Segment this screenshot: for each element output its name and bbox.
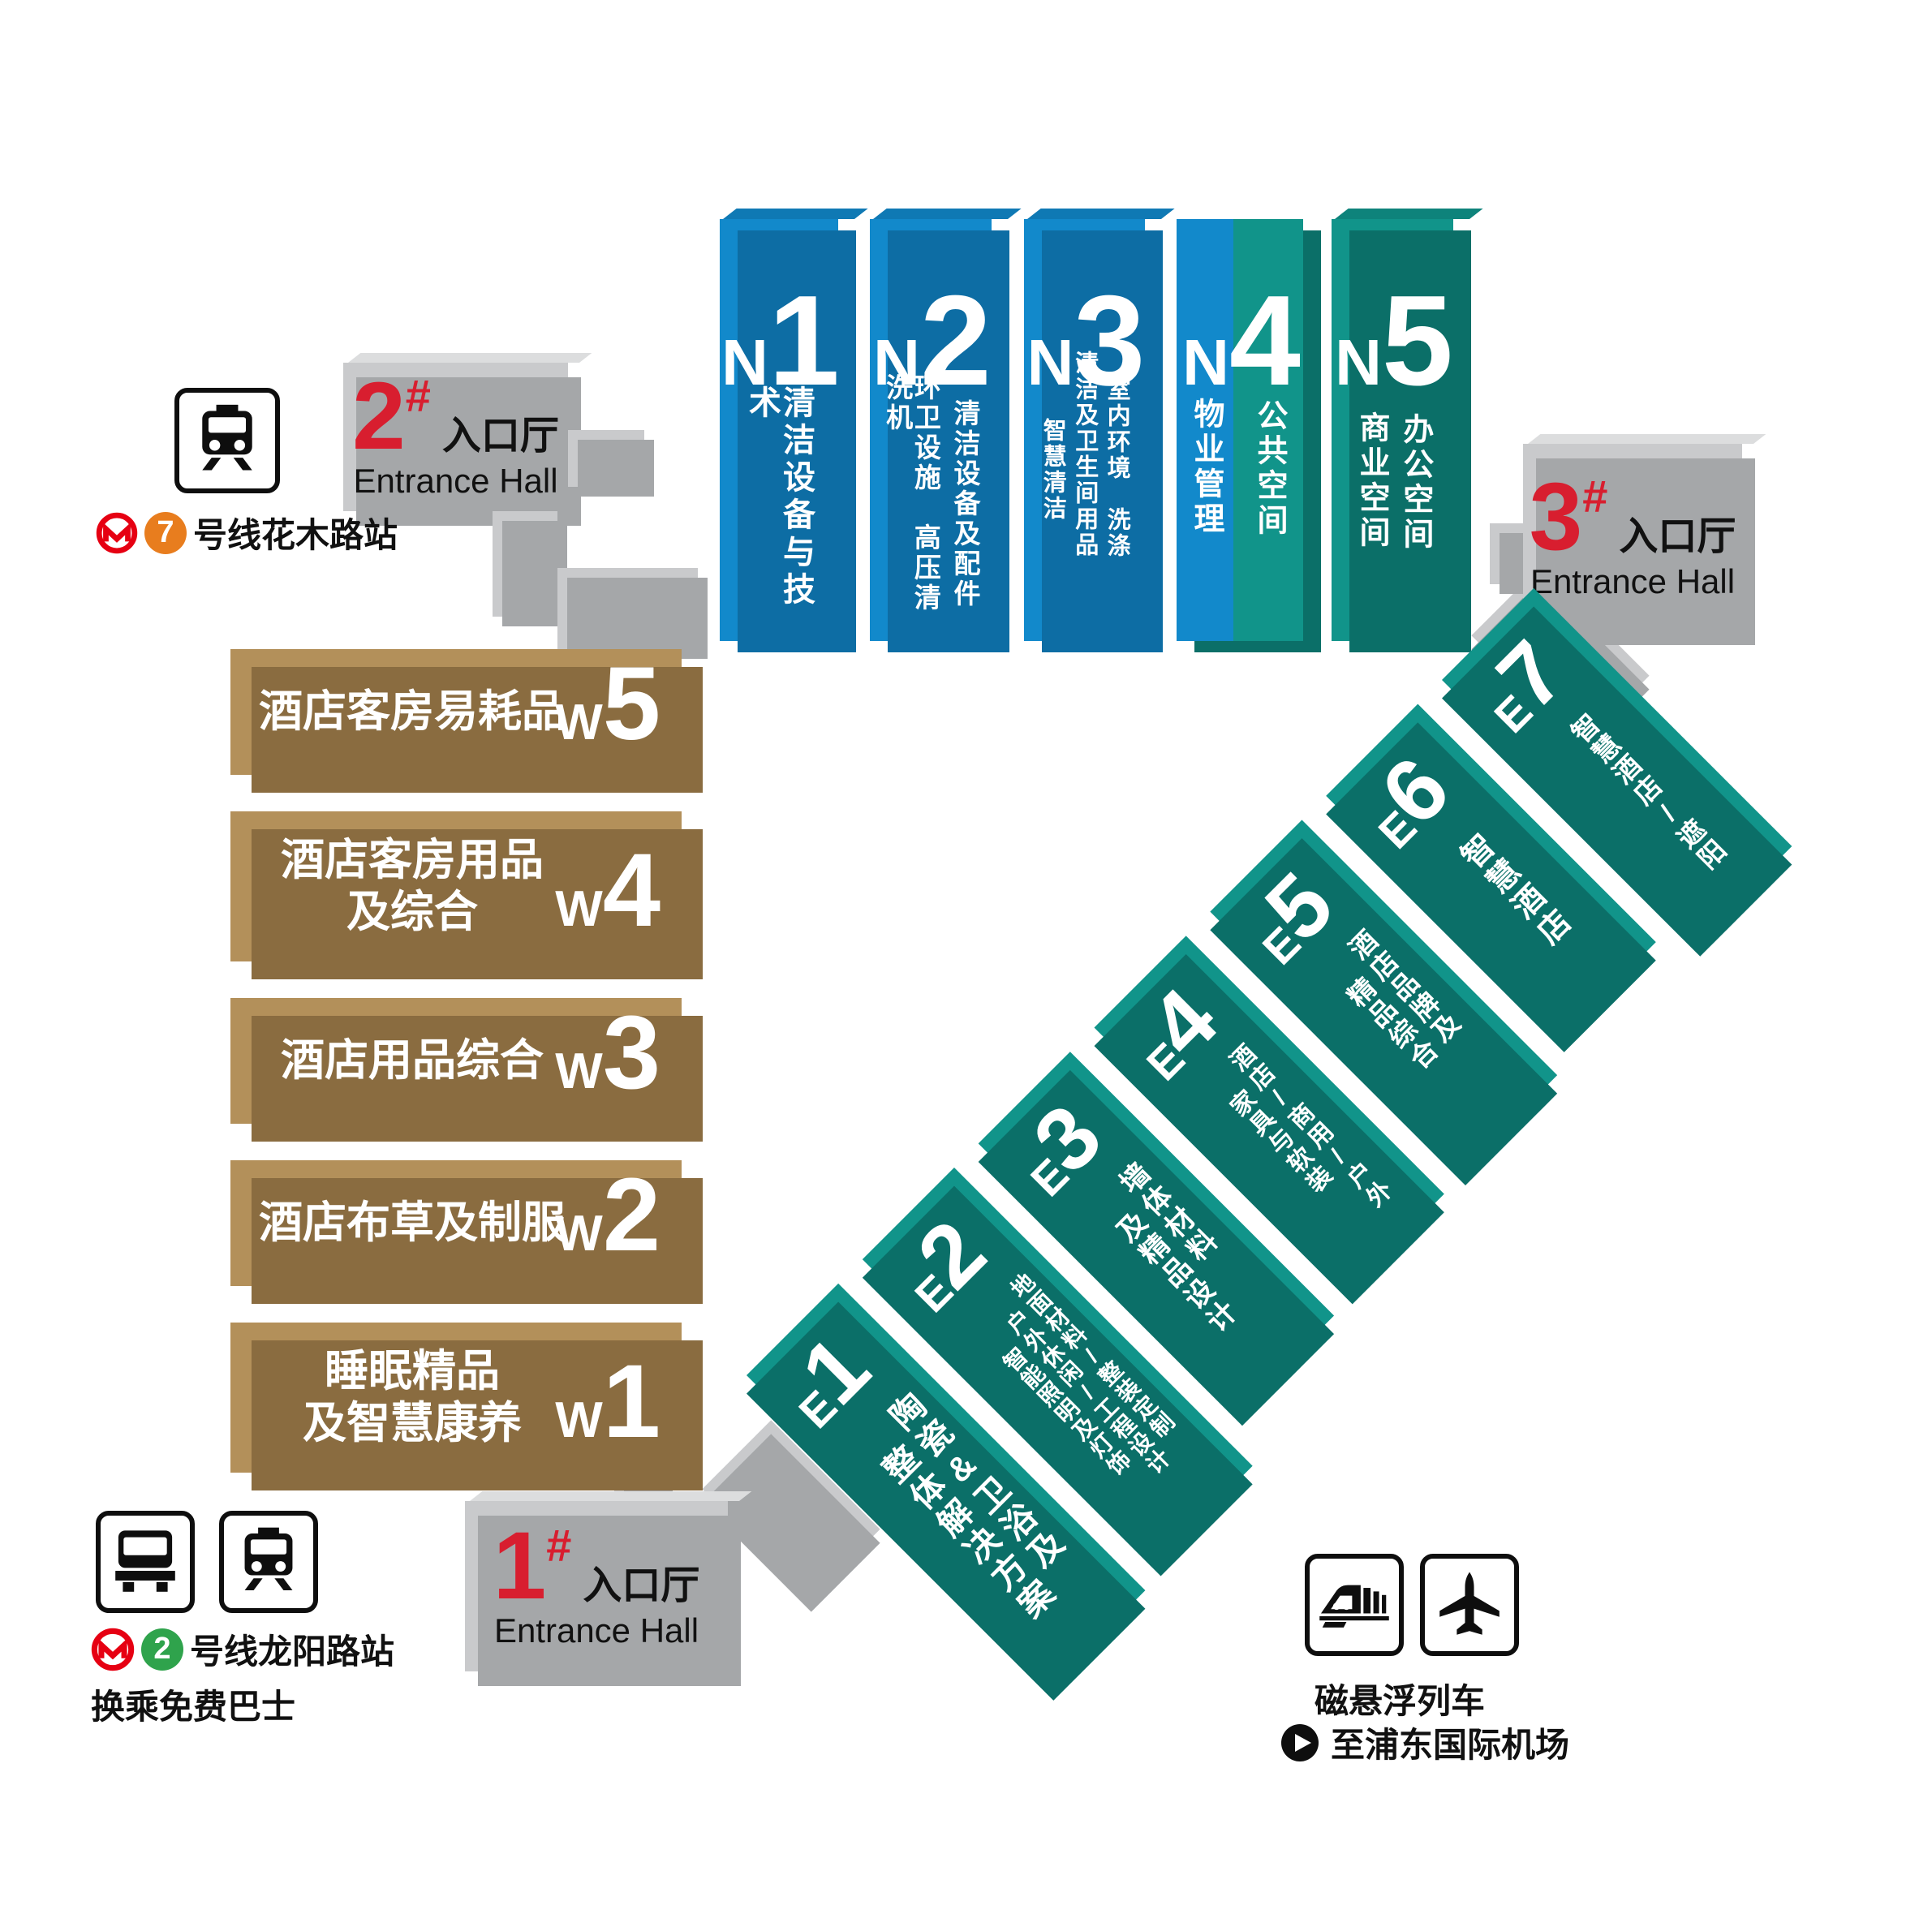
train-front-icon (174, 388, 280, 493)
transit-longyang-cluster: 2 号线龙阳路站 换乘免费巴士 (96, 1511, 318, 1613)
hall-n5-label: N5 (1332, 268, 1453, 415)
maglev-destination-label: 至浦东国际机场 (1331, 1718, 1569, 1767)
entrance-2-title-en: Entrance Hall (353, 462, 557, 501)
hall-n4[interactable]: 物业管理 公共空间 N4 (1177, 219, 1303, 641)
hall-w1-category-line1: 睡眠精品 (250, 1346, 574, 1398)
hall-w5-category: 酒店客房易耗品 (250, 686, 574, 738)
maglev-airport-row: 至浦东国际机场 (1280, 1718, 1569, 1767)
line2-shuttle-note: 换乘免费巴士 (91, 1680, 295, 1729)
train-front-icon (219, 1511, 318, 1613)
hall-n5-category-2: 办公空间 (1398, 413, 1431, 553)
hall-w1[interactable]: 睡眠精品 及智慧康养 W1 (230, 1323, 682, 1473)
shanghai-metro-logo (91, 1628, 135, 1671)
hall-w3-label: W3 (555, 993, 660, 1112)
transit-maglev-cluster: 磁悬浮列车 至浦东国际机场 (1305, 1554, 1519, 1656)
line2-station-label: 号线龙阳路站 (190, 1624, 394, 1674)
hall-n3[interactable]: 智慧清洁 清洁及卫生间用品 室内环境 洗涤 N3 (1024, 219, 1145, 641)
transit-huamu-cluster: 7 号线花木路站 (174, 388, 280, 493)
entrance-1-title-cn: 入口厅 (583, 1553, 699, 1610)
entrance-1-title-en: Entrance Hall (494, 1611, 699, 1650)
line7-badge: 7 (144, 512, 187, 554)
hall-n5-category-1: 商业空间 (1354, 411, 1387, 551)
entrance-2-down-stub (493, 511, 557, 617)
hall-w1-category-line2: 及智慧康养 (250, 1398, 574, 1450)
expo-floor-map: 2#入口厅 Entrance Hall 3#入口厅 Entrance Hall … (0, 0, 1932, 1927)
line2-badge: 2 (141, 1628, 183, 1671)
entrance-hall-3-block[interactable]: 3#入口厅 Entrance Hall (1523, 444, 1742, 630)
hall-w2-label: W2 (555, 1155, 660, 1275)
entrance-1-hash: # (546, 1519, 571, 1572)
hall-w4-category-line1: 酒店客房用品 (250, 835, 574, 887)
hall-n2-label: N2 (870, 268, 992, 415)
shanghai-metro-logo (96, 512, 138, 554)
entrance-2-title-cn: 入口厅 (442, 403, 559, 460)
hall-n1-label: N1 (720, 268, 838, 415)
hall-w5[interactable]: 酒店客房易耗品 W5 (230, 649, 682, 775)
line2-station-row: 2 号线龙阳路站 (91, 1624, 394, 1674)
hall-w2-category: 酒店布草及制服 (250, 1198, 574, 1250)
entrance-2-right-arm (568, 430, 644, 487)
hall-n1[interactable]: 清洁设备与技术 N1 (720, 219, 838, 641)
hall-n3-label: N3 (1024, 268, 1145, 415)
hall-w2[interactable]: 酒店布草及制服 W2 (230, 1160, 682, 1286)
entrance-3-left-stub (1490, 523, 1523, 584)
entrance-2-connector (557, 568, 698, 649)
entrance-hall-1-block[interactable]: 1#入口厅 Entrance Hall (465, 1501, 728, 1671)
hall-w3[interactable]: 酒店用品综合 W3 (230, 998, 682, 1124)
entrance-3-hash: # (1582, 470, 1607, 523)
line7-station-label: 号线花木路站 (193, 508, 398, 557)
hall-n3-category-1: 智慧清洁 (1040, 418, 1065, 522)
hall-w4-label: W4 (555, 831, 660, 950)
entrance-1-number: 1 (493, 1523, 547, 1609)
hall-n4-category-right: 公共空间 (1252, 399, 1284, 539)
hall-w4[interactable]: 酒店客房用品 及综合 W4 (230, 811, 682, 961)
hall-w3-category: 酒店用品综合 (250, 1035, 574, 1087)
hall-e6-category: 智慧酒店 (1452, 830, 1576, 954)
maglev-label: 磁悬浮列车 (1315, 1674, 1485, 1723)
entrance-3-number: 3 (1530, 474, 1583, 560)
airplane-icon (1420, 1554, 1519, 1656)
hall-w4-category-line2: 及综合 (250, 887, 574, 939)
hall-n2-category-2: 清洁设备及配件 (950, 399, 979, 609)
maglev-train-icon (1305, 1554, 1404, 1656)
hall-n4-label: N4 (1177, 268, 1303, 415)
hall-n5[interactable]: 商业空间 办公空间 N5 (1332, 219, 1453, 641)
entrance-3-title-en: Entrance Hall (1530, 562, 1735, 601)
line7-station-row: 7 号线花木路站 (96, 508, 398, 557)
hall-n4-category-left: 物业管理 (1189, 398, 1221, 537)
entrance-2-hash: # (406, 369, 431, 422)
play-arrow-icon (1280, 1723, 1319, 1762)
hall-e7-category: 智慧酒店/遮阳 (1564, 710, 1731, 877)
hall-n1-category: 清洁设备与技术 (745, 385, 813, 641)
hall-w5-label: W5 (555, 644, 660, 763)
entrance-hall-2-block[interactable]: 2#入口厅 Entrance Hall (343, 363, 568, 511)
hall-n2[interactable]: 环卫设施 高压清洗机 清洁设备及配件 N2 (870, 219, 992, 641)
entrance-2-number: 2 (352, 373, 406, 459)
bus-front-icon (96, 1511, 195, 1613)
hall-w1-label: W1 (555, 1342, 660, 1461)
entrance-3-title-cn: 入口厅 (1619, 504, 1736, 561)
